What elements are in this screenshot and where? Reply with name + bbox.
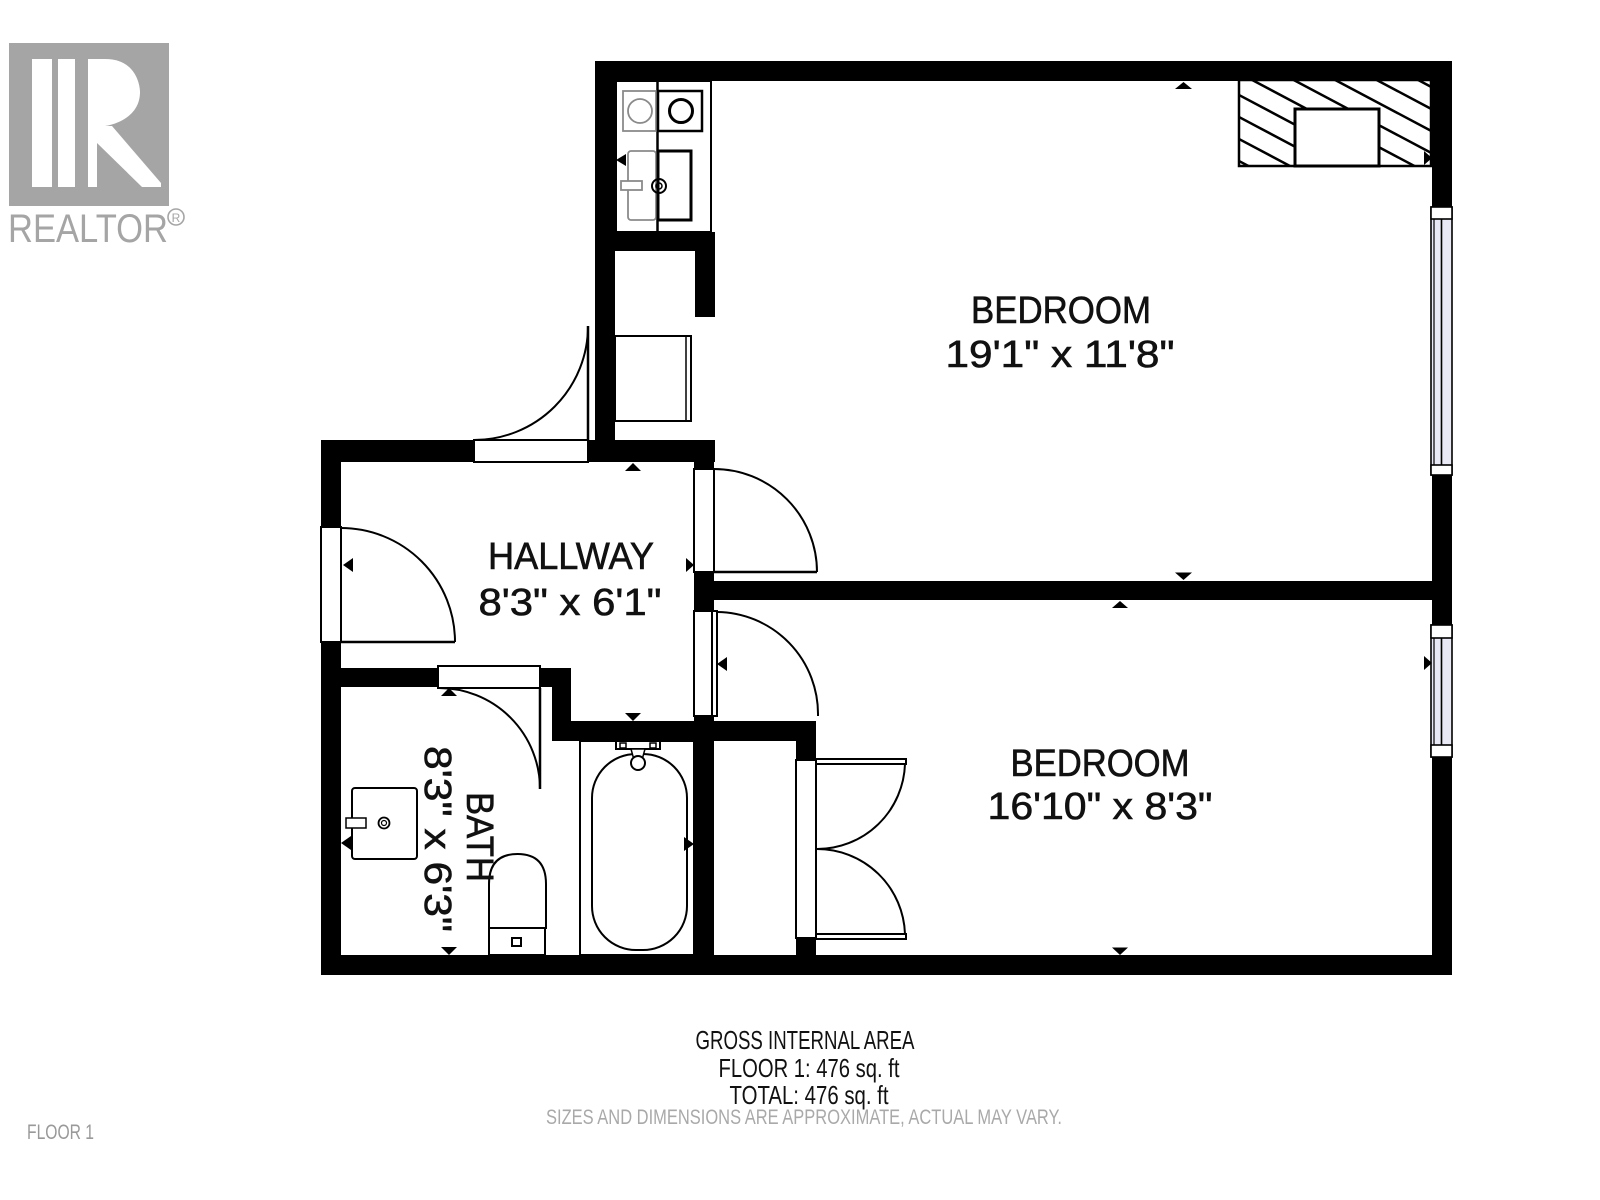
svg-text:19'1" x 11'8": 19'1" x 11'8" (946, 334, 1175, 376)
svg-text:SIZES AND DIMENSIONS ARE APPRO: SIZES AND DIMENSIONS ARE APPROXIMATE, AC… (546, 1106, 1062, 1129)
svg-text:BEDROOM: BEDROOM (1011, 743, 1190, 785)
svg-text:16'10" x 8'3": 16'10" x 8'3" (988, 786, 1213, 828)
svg-text:GROSS INTERNAL AREA: GROSS INTERNAL AREA (696, 1025, 915, 1055)
svg-text:8'3" x 6'1": 8'3" x 6'1" (479, 582, 662, 624)
svg-text:REALTOR: REALTOR (8, 207, 168, 251)
svg-text:BATH: BATH (458, 792, 500, 882)
svg-text:FLOOR 1: FLOOR 1 (27, 1121, 94, 1144)
svg-text:HALLWAY: HALLWAY (488, 536, 654, 578)
svg-text:8'3" x 6'3": 8'3" x 6'3" (416, 746, 458, 932)
svg-text:R: R (172, 211, 181, 225)
svg-text:FLOOR 1: 476 sq. ft: FLOOR 1: 476 sq. ft (719, 1053, 901, 1083)
svg-text:BEDROOM: BEDROOM (971, 290, 1151, 332)
